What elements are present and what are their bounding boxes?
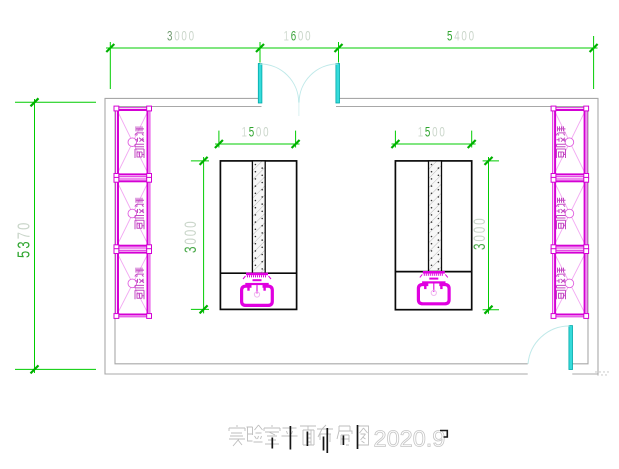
- svg-text:5400: 5400: [447, 28, 476, 44]
- svg-text:5370: 5370: [15, 221, 35, 258]
- svg-text:1500: 1500: [418, 124, 447, 140]
- svg-text:1600: 1600: [284, 28, 313, 44]
- svg-text:2020.9: 2020.9: [374, 426, 446, 452]
- svg-text:3000: 3000: [167, 28, 196, 44]
- svg-text:3000: 3000: [182, 219, 201, 253]
- svg-text:3000: 3000: [471, 216, 490, 250]
- svg-text:1500: 1500: [242, 124, 271, 140]
